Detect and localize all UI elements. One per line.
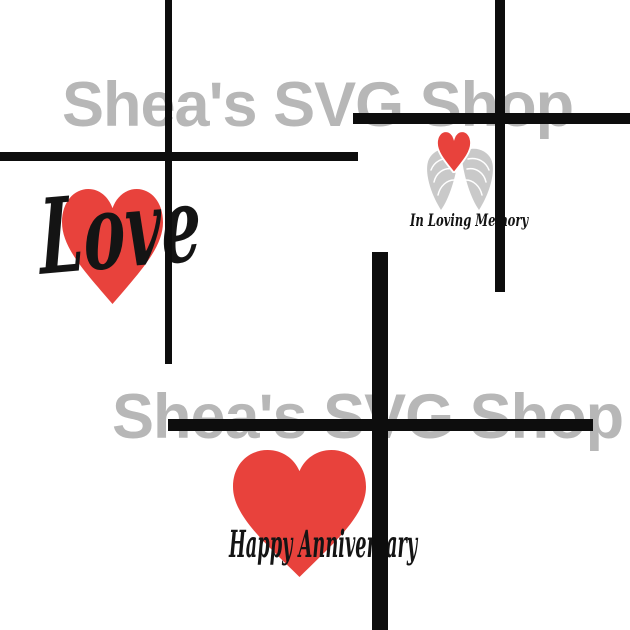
cross-top-left-horizontal-bar xyxy=(0,152,358,161)
cross-top-right-vertical-bar xyxy=(495,0,505,292)
love-label: Love xyxy=(38,172,203,290)
watermark-text-bottom: Shea's SVG Shop xyxy=(112,386,623,449)
design-canvas: Shea's SVG Shop Shea's SVG Shop Love xyxy=(0,0,630,630)
cross-bottom-vertical-bar xyxy=(372,252,388,630)
heart-icon xyxy=(437,131,471,173)
cross-bottom-horizontal-bar xyxy=(168,419,593,431)
cross-top-right-horizontal-bar xyxy=(353,113,630,124)
in-loving-memory-label: In Loving Memory xyxy=(410,213,528,230)
cross-top-left-vertical-bar xyxy=(165,0,172,364)
happy-anniversary-label: Happy Anniversary xyxy=(229,526,417,563)
